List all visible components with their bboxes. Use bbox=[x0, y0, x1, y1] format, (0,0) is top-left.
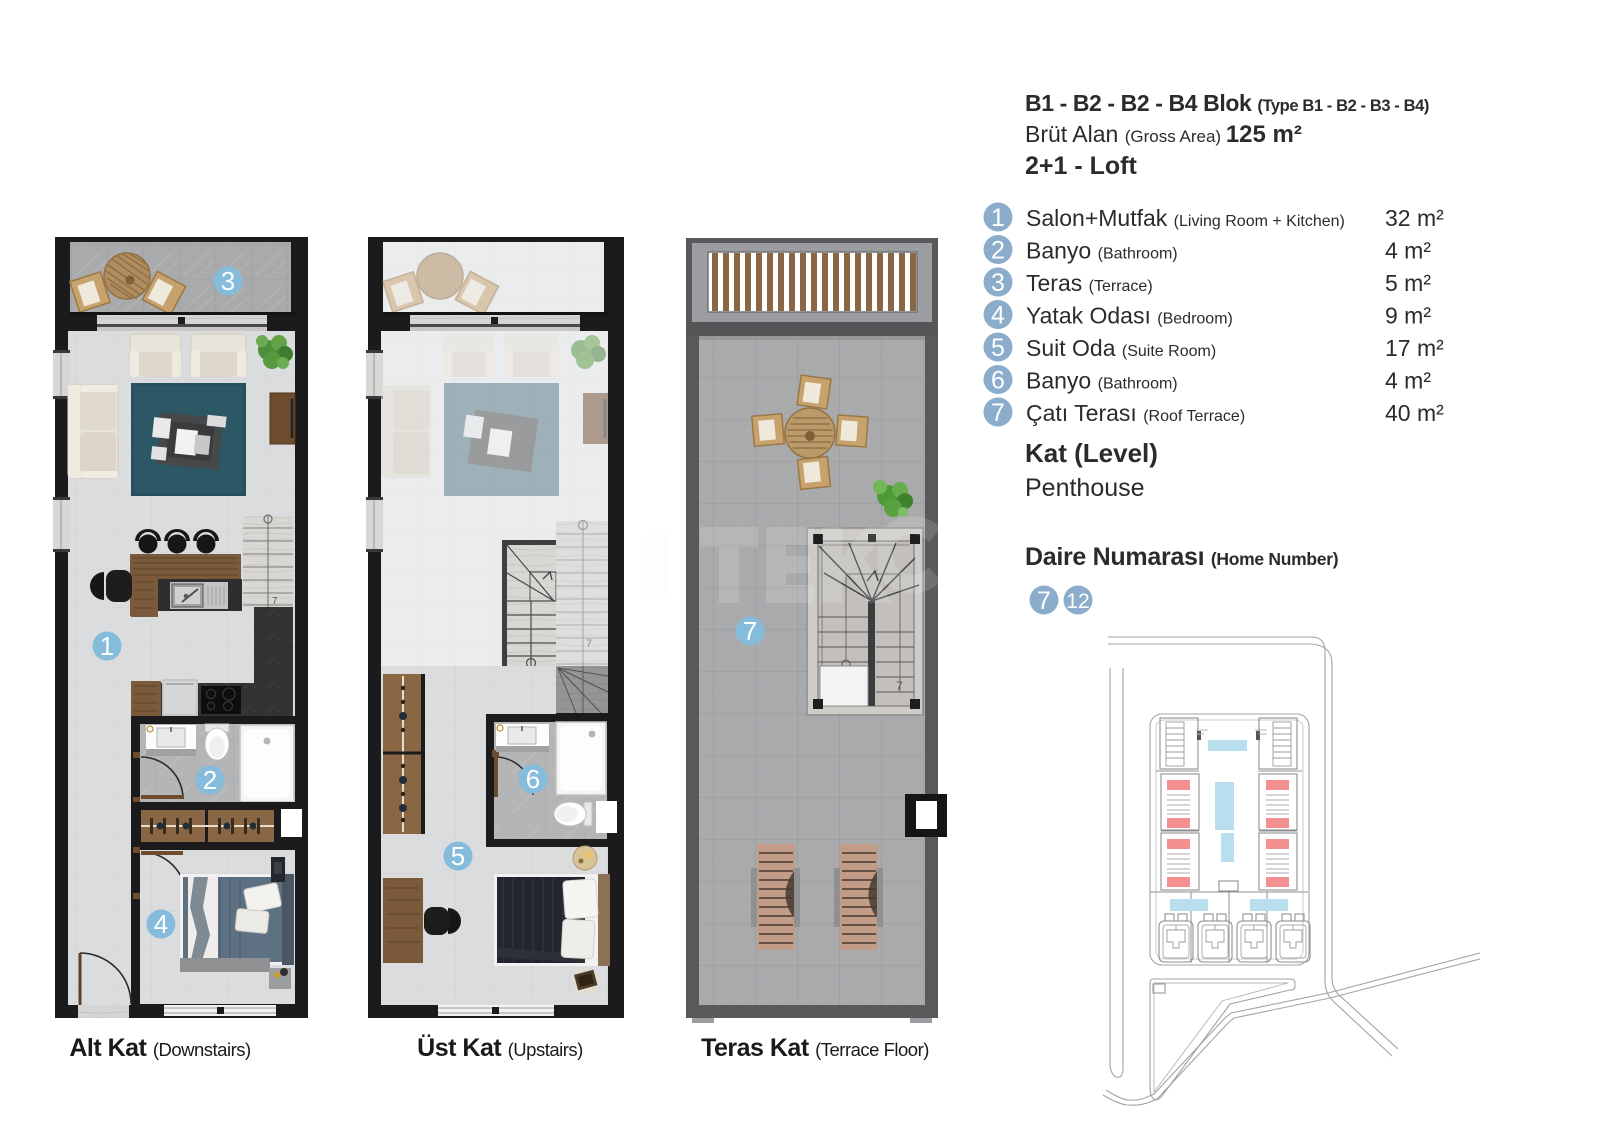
svg-text:6: 6 bbox=[526, 764, 540, 794]
svg-text:7: 7 bbox=[896, 679, 903, 693]
svg-text:7: 7 bbox=[586, 638, 592, 650]
svg-text:3: 3 bbox=[991, 269, 1005, 297]
svg-text:5 m²: 5 m² bbox=[1385, 270, 1431, 296]
svg-text:7: 7 bbox=[743, 616, 757, 646]
svg-text:12: 12 bbox=[1066, 590, 1089, 613]
svg-text:32 m²: 32 m² bbox=[1385, 205, 1444, 231]
svg-text:Kat (Level): Kat (Level) bbox=[1025, 438, 1158, 468]
svg-text:4 m²: 4 m² bbox=[1385, 368, 1431, 394]
svg-text:40 m²: 40 m² bbox=[1385, 400, 1444, 426]
svg-text:6: 6 bbox=[991, 367, 1005, 395]
svg-text:1: 1 bbox=[991, 204, 1005, 232]
svg-text:2: 2 bbox=[991, 237, 1005, 265]
svg-text:Teras Kat (Terrace Floor): Teras Kat (Terrace Floor) bbox=[701, 1034, 929, 1062]
svg-text:2+1 - Loft: 2+1 - Loft bbox=[1025, 152, 1137, 180]
svg-text:7: 7 bbox=[1037, 587, 1051, 615]
svg-text:9 m²: 9 m² bbox=[1385, 303, 1431, 329]
svg-text:5: 5 bbox=[451, 841, 465, 871]
svg-text:Penthouse: Penthouse bbox=[1025, 474, 1145, 502]
svg-text:4: 4 bbox=[991, 302, 1005, 330]
svg-text:2: 2 bbox=[203, 765, 217, 795]
svg-text:Alt Kat (Downstairs): Alt Kat (Downstairs) bbox=[69, 1034, 251, 1062]
svg-text:7: 7 bbox=[991, 399, 1005, 427]
svg-text:17 m²: 17 m² bbox=[1385, 335, 1444, 361]
svg-text:4: 4 bbox=[154, 909, 168, 939]
svg-text:5: 5 bbox=[991, 334, 1005, 362]
svg-text:3: 3 bbox=[221, 266, 235, 296]
svg-text:1: 1 bbox=[100, 631, 114, 661]
svg-text:4 m²: 4 m² bbox=[1385, 238, 1431, 264]
svg-text:7: 7 bbox=[272, 596, 278, 607]
